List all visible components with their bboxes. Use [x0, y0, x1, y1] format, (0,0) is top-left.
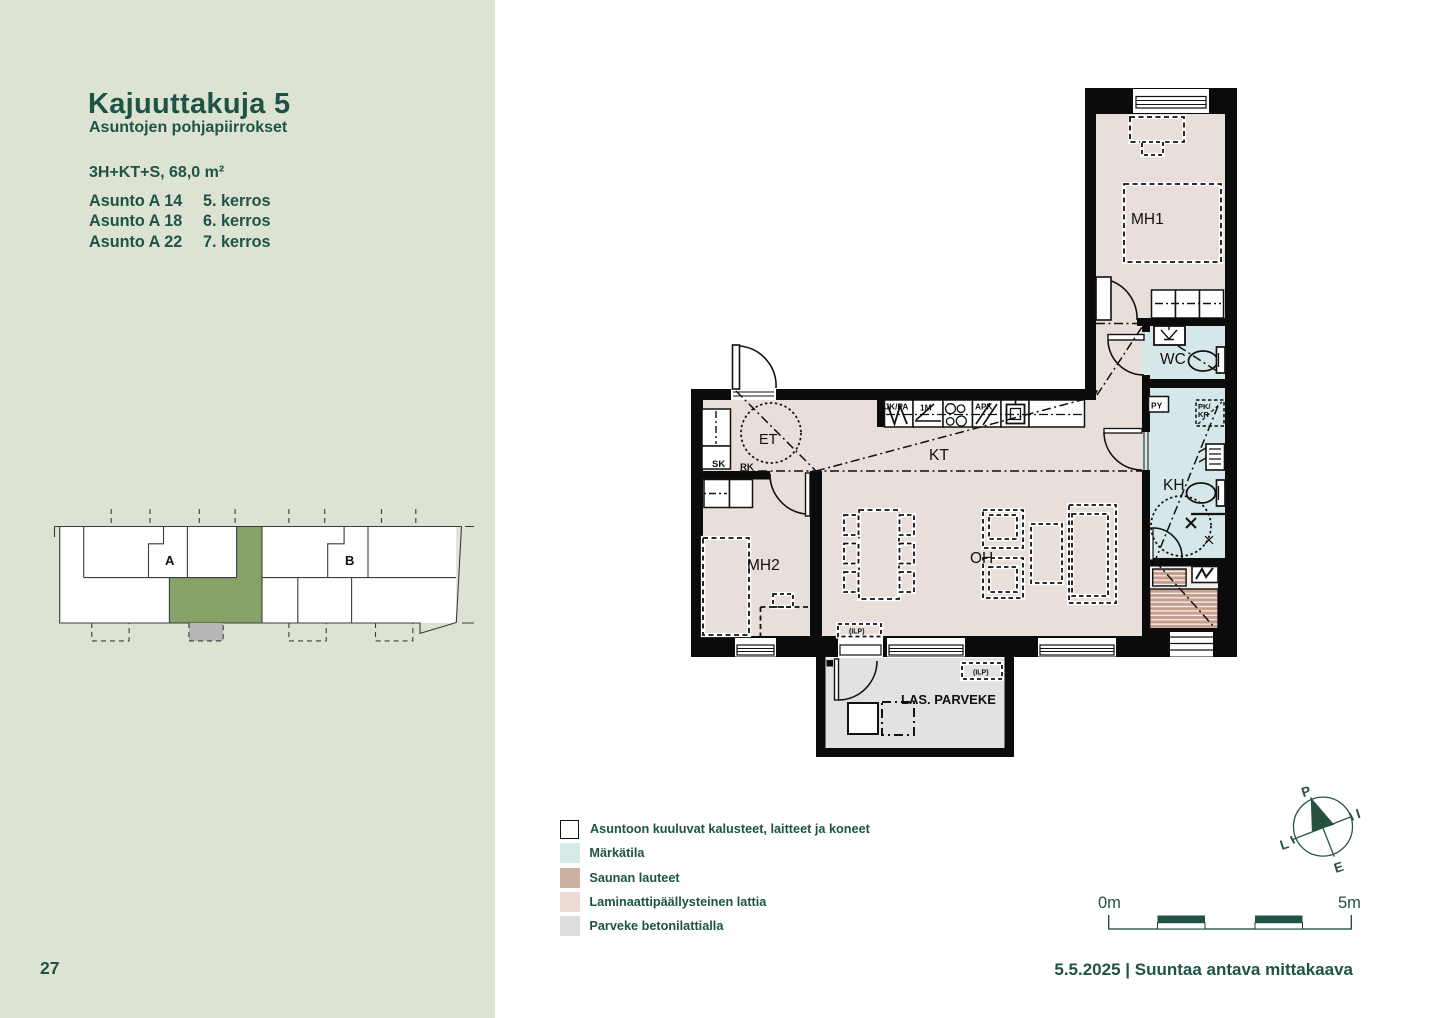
svg-text:P: P [1299, 783, 1312, 800]
svg-text:WC: WC [1160, 351, 1186, 368]
svg-text:E: E [1332, 859, 1345, 876]
svg-text:LAS. PARVEKE: LAS. PARVEKE [901, 692, 996, 707]
svg-text:L: L [1278, 836, 1290, 853]
svg-text:PY: PY [1151, 401, 1163, 411]
svg-text:MH1: MH1 [1131, 211, 1164, 228]
svg-text:KR: KR [1198, 410, 1209, 419]
svg-text:JK/PA: JK/PA [885, 402, 909, 412]
svg-text:(ILP): (ILP) [973, 670, 989, 677]
svg-text:APK: APK [975, 402, 993, 412]
svg-text:1M: 1M [920, 403, 932, 413]
svg-text:A: A [165, 553, 175, 568]
svg-text:KH: KH [1163, 477, 1185, 494]
svg-text:(ILP): (ILP) [849, 629, 865, 636]
svg-text:B: B [345, 553, 354, 568]
svg-text:RK: RK [740, 462, 754, 473]
svg-text:MH2: MH2 [747, 557, 780, 574]
svg-text:5m: 5m [1338, 894, 1361, 912]
svg-text:I: I [1354, 806, 1362, 821]
svg-text:SK: SK [712, 459, 725, 470]
svg-text:OH: OH [970, 550, 993, 567]
svg-text:KT: KT [929, 447, 949, 464]
svg-text:0m: 0m [1098, 894, 1121, 912]
svg-text:ET: ET [759, 432, 778, 448]
